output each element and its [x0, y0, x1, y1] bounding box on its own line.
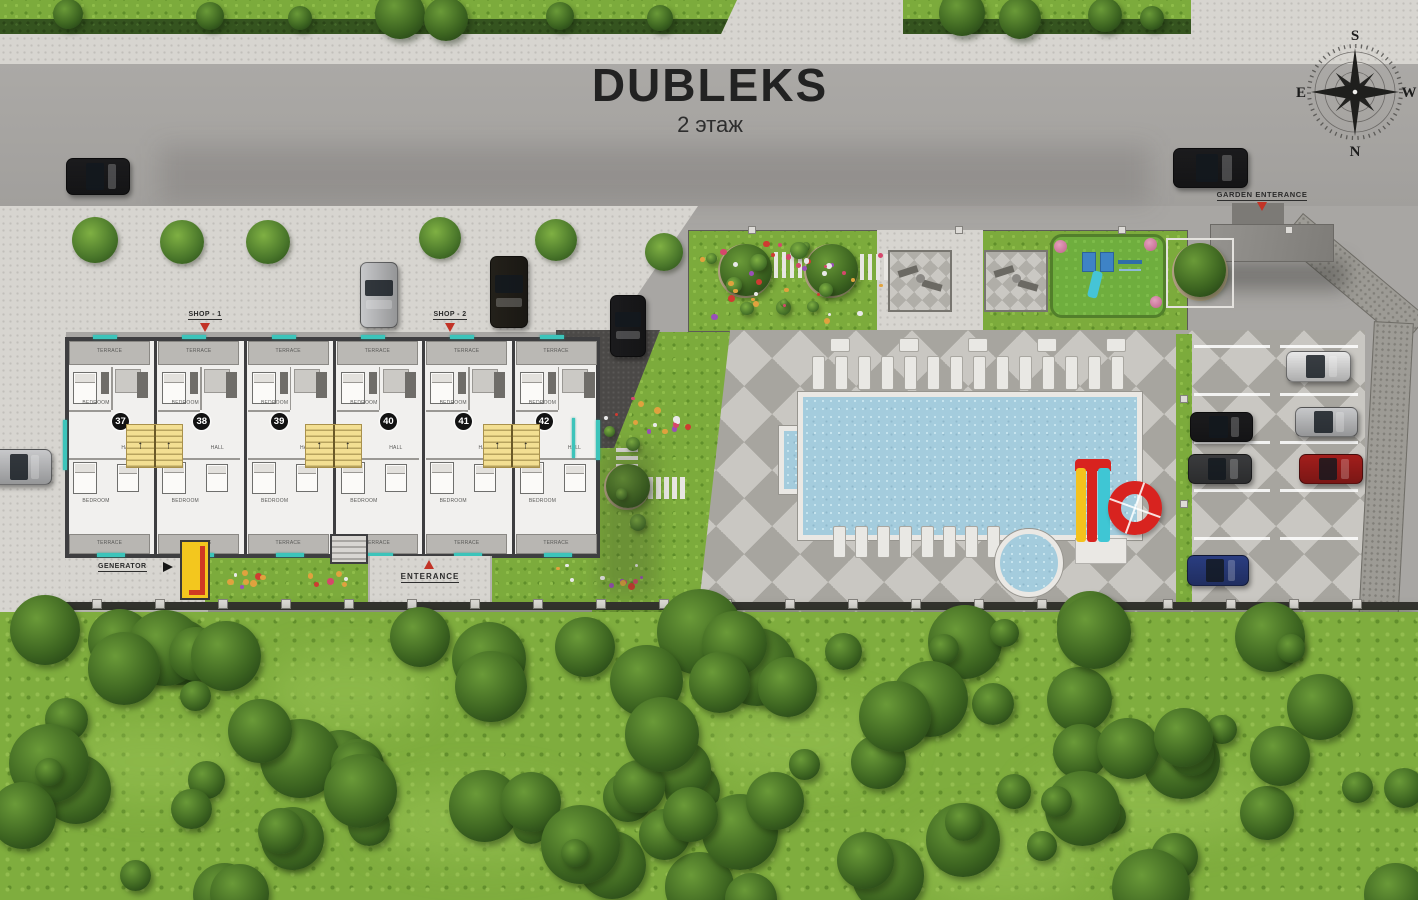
- wall-post: [848, 599, 858, 609]
- corner-planter-tree: [1174, 243, 1226, 297]
- stepping-stone: [860, 254, 864, 280]
- garden-bush: [790, 242, 807, 259]
- parking-line: [1194, 393, 1270, 396]
- bed: [385, 464, 407, 492]
- generator-unit-base: [189, 590, 205, 595]
- stair-flight: ↑: [484, 425, 511, 467]
- terrace-label: TERRACE: [69, 348, 150, 354]
- stepping-stone: [664, 477, 669, 499]
- forest-tree: [1240, 786, 1294, 840]
- forest-tree: [10, 595, 80, 665]
- car-sidewalk-dark: [490, 256, 528, 328]
- forest-tree: [120, 860, 151, 891]
- stepping-stone: [672, 477, 677, 499]
- terrace-label: TERRACE: [426, 540, 507, 546]
- forest-tree: [228, 699, 292, 763]
- terrace-label: TERRACE: [158, 348, 239, 354]
- room-partition: [69, 410, 111, 412]
- street-tree: [424, 0, 468, 41]
- pool-table: [830, 338, 850, 352]
- forest-tree: [789, 749, 819, 779]
- forest-tree: [746, 772, 803, 829]
- bedroom-label: BEDROOM: [426, 498, 480, 504]
- street-tree: [647, 5, 673, 31]
- flower: [796, 263, 801, 268]
- car-roof-highlight: [1228, 560, 1236, 580]
- car-glass: [1206, 559, 1224, 581]
- wall-post: [1226, 599, 1236, 609]
- balcony-accent: [544, 553, 572, 557]
- wall-post: [596, 599, 606, 609]
- sun-lounger: [1065, 356, 1078, 390]
- pool-table: [1037, 338, 1057, 352]
- shop2-label-text: SHOP - 2: [433, 311, 466, 320]
- sun-lounger: [835, 356, 848, 390]
- room-partition: [158, 410, 200, 412]
- garden-bush: [750, 254, 767, 271]
- garden-bush: [807, 301, 818, 312]
- stair-flight: ↑: [127, 425, 154, 467]
- bedroom-label: BEDROOM: [248, 400, 302, 406]
- bed: [73, 462, 97, 494]
- car-glass: [1306, 355, 1325, 377]
- street-tree: [53, 0, 83, 29]
- flower: [234, 573, 237, 576]
- car-parking-black: [1190, 412, 1253, 442]
- forest-tree: [1047, 667, 1112, 732]
- staircase: ↑↑: [305, 424, 362, 468]
- street-tree: [288, 6, 312, 30]
- entrance-arrow: [424, 560, 434, 569]
- wardrobe: [190, 372, 198, 394]
- stair-flight: ↑: [511, 425, 540, 467]
- entrance-label-text: ENTERANCE: [401, 572, 460, 583]
- car-roof-highlight: [1231, 417, 1239, 437]
- car-roof-highlight: [1329, 356, 1337, 376]
- balcony-accent: [361, 335, 385, 339]
- forest-tree: [390, 607, 450, 667]
- terrace-label: TERRACE: [248, 540, 329, 546]
- flower: [804, 258, 809, 263]
- hall-label: HALL: [200, 445, 234, 451]
- sun-lounger: [950, 356, 963, 390]
- car-roof-highlight: [366, 300, 391, 309]
- flower: [733, 289, 737, 293]
- car-road-left: [66, 158, 130, 195]
- balcony-accent: [97, 553, 125, 557]
- bed: [474, 464, 496, 492]
- sun-lounger: [943, 526, 956, 558]
- sun-lounger: [973, 356, 986, 390]
- flower: [662, 429, 668, 435]
- unit-badge: 39: [271, 413, 288, 430]
- forest-tree: [758, 657, 817, 716]
- wall-post: [911, 599, 921, 609]
- stair-flight: ↑: [154, 425, 183, 467]
- bed: [117, 464, 139, 492]
- wardrobe: [316, 372, 327, 398]
- terrace-label: TERRACE: [69, 540, 150, 546]
- flower: [771, 253, 775, 257]
- wardrobe: [280, 372, 288, 394]
- sun-lounger: [1019, 356, 1032, 390]
- wardrobe: [584, 372, 595, 398]
- garden-entrance-label: GARDEN ENTERANCE: [1196, 190, 1328, 199]
- balcony-accent: [596, 420, 600, 460]
- forest-tree: [1384, 768, 1418, 808]
- flower: [822, 271, 827, 276]
- sun-lounger: [833, 526, 846, 558]
- forest-tree: [1250, 726, 1310, 786]
- balcony-accent: [63, 420, 67, 470]
- balcony-accent: [272, 335, 296, 339]
- sidewalk-bush: [160, 220, 204, 264]
- street-tree: [939, 0, 985, 36]
- flower: [565, 564, 568, 567]
- generator-label-text: GENERATOR: [98, 563, 147, 572]
- generator-label: GENERATOR: [98, 563, 147, 570]
- flower: [633, 420, 638, 425]
- shop1-label: SHOP - 1: [170, 311, 240, 318]
- garden-bush: [604, 426, 615, 437]
- balcony-accent: [93, 335, 117, 339]
- shop2-label: SHOP - 2: [415, 311, 485, 318]
- street-tree: [546, 2, 574, 30]
- garden-entrance-arrow: [1257, 202, 1267, 211]
- forest-tree: [1364, 863, 1418, 900]
- forest-tree: [837, 832, 894, 889]
- bedroom-label: BEDROOM: [248, 498, 302, 504]
- forest-tree: [945, 803, 982, 840]
- car-sidewalk-silver: [360, 262, 398, 328]
- room-partition: [337, 410, 379, 412]
- parking-line: [1280, 441, 1358, 444]
- forest-tree: [1154, 708, 1213, 767]
- room-partition: [426, 410, 468, 412]
- shop1-label-text: SHOP - 1: [188, 311, 221, 320]
- wardrobe: [226, 372, 237, 398]
- plan-title: DUBLEKS: [510, 62, 910, 108]
- garden-post: [1118, 226, 1126, 234]
- pool-table: [899, 338, 919, 352]
- wall-post: [155, 599, 165, 609]
- sidewalk-bush: [535, 219, 577, 261]
- stepping-stone: [656, 477, 661, 499]
- car-glass: [1196, 154, 1218, 183]
- car-roof-highlight: [1336, 412, 1344, 432]
- compass-s: S: [1351, 28, 1359, 44]
- terrace-label: TERRACE: [426, 348, 507, 354]
- flower: [784, 288, 788, 292]
- terrace-label: TERRACE: [516, 348, 597, 354]
- forest-tree: [625, 697, 700, 772]
- sidewalk-bush: [419, 217, 461, 259]
- sun-lounger: [996, 356, 1009, 390]
- parking-line: [1194, 537, 1270, 540]
- terrace-label: TERRACE: [516, 540, 597, 546]
- flower-tree: [1150, 296, 1162, 308]
- sun-lounger: [858, 356, 871, 390]
- flower: [327, 578, 334, 585]
- staircase: ↑↑: [126, 424, 183, 468]
- car-roof-highlight: [108, 164, 116, 189]
- plan-title-block: DUBLEKS 2 этаж: [510, 62, 910, 138]
- compass-w: W: [1402, 85, 1417, 101]
- garden-post: [955, 226, 963, 234]
- wardrobe: [458, 372, 466, 394]
- bedroom-label: BEDROOM: [337, 400, 391, 406]
- flower-tree: [1054, 240, 1067, 253]
- sun-lounger: [881, 356, 894, 390]
- bed: [564, 464, 586, 492]
- sun-lounger: [1042, 356, 1055, 390]
- parking-line: [1280, 489, 1358, 492]
- waterslide-lane-yellow: [1076, 468, 1086, 542]
- jacuzzi: [995, 529, 1063, 597]
- wall-post: [344, 599, 354, 609]
- car-parking-gray: [1188, 454, 1252, 484]
- flower: [604, 416, 608, 420]
- flower-tree: [1144, 238, 1157, 251]
- bed: [252, 462, 276, 494]
- balcony-accent: [540, 335, 564, 339]
- unit-divider-wall: [244, 341, 247, 554]
- flower: [763, 241, 769, 247]
- room-partition: [248, 410, 290, 412]
- parking-line: [1280, 345, 1358, 348]
- wall-post: [785, 599, 795, 609]
- sun-lounger: [1088, 356, 1101, 390]
- car-parking-blue: [1187, 555, 1249, 586]
- forest-tree: [825, 633, 862, 670]
- street-tree: [1140, 6, 1164, 30]
- wall-post: [1352, 599, 1362, 609]
- forest-tree: [1277, 634, 1305, 662]
- parking-line: [1280, 393, 1358, 396]
- generator-arrow: [163, 562, 173, 572]
- car-parking-red: [1299, 454, 1363, 484]
- forest-tree: [997, 774, 1031, 808]
- car-roof-highlight: [1341, 459, 1349, 479]
- unit-divider-wall: [422, 341, 425, 554]
- street-tree: [999, 0, 1041, 39]
- forest-tree: [191, 621, 261, 691]
- sun-lounger: [812, 356, 825, 390]
- car-parking-white: [1286, 351, 1351, 382]
- forest: [0, 612, 1418, 900]
- sun-lounger: [921, 526, 934, 558]
- wall-post: [1163, 599, 1173, 609]
- wall-post: [218, 599, 228, 609]
- balcony-accent: [572, 418, 575, 458]
- forest-tree: [455, 651, 526, 722]
- bedroom-label: BEDROOM: [516, 498, 570, 504]
- stair-flight: ↑: [306, 425, 333, 467]
- car-glass: [365, 280, 392, 297]
- wardrobe: [548, 372, 556, 394]
- bed: [206, 464, 228, 492]
- playground-tower-2: [1100, 252, 1114, 272]
- compass-e: E: [1296, 85, 1306, 101]
- forest-tree: [663, 787, 718, 842]
- bedroom-label: BEDROOM: [69, 400, 123, 406]
- forest-tree: [1342, 772, 1373, 803]
- car-left-edge-silver: [0, 449, 52, 485]
- flower: [336, 571, 342, 577]
- street-tree: [196, 2, 224, 30]
- generator-room: [180, 540, 210, 600]
- flower: [733, 262, 738, 267]
- entrance-label: ENTERANCE: [368, 572, 492, 581]
- car-glass: [1314, 411, 1332, 432]
- pergola-table: [916, 274, 925, 283]
- flower: [753, 301, 759, 307]
- pool-table: [1106, 338, 1126, 352]
- room-partition: [516, 410, 558, 412]
- staircase: ↑↑: [483, 424, 540, 468]
- car-glass: [10, 454, 27, 480]
- sidewalk-bush: [246, 220, 290, 264]
- wall-post: [533, 599, 543, 609]
- wardrobe: [405, 372, 416, 398]
- wall-post: [1289, 599, 1299, 609]
- bedroom-label: BEDROOM: [158, 498, 212, 504]
- wall-post: [470, 599, 480, 609]
- flower: [842, 271, 846, 275]
- garden-bush: [740, 302, 754, 316]
- garden-post: [1285, 226, 1293, 234]
- garden-entrance-shadow: [1218, 260, 1346, 290]
- garden-entrance-label-text: GARDEN ENTERANCE: [1217, 190, 1308, 201]
- car-glass: [615, 312, 641, 328]
- forest-tree: [180, 681, 211, 712]
- sun-lounger: [965, 526, 978, 558]
- car-corner-black: [610, 295, 646, 357]
- waterslide-lane-red: [1087, 468, 1097, 542]
- boundary-wall: [62, 602, 1418, 610]
- car-glass: [1208, 458, 1227, 479]
- stepping-stone: [680, 477, 685, 499]
- bedroom-label: BEDROOM: [426, 400, 480, 406]
- flower: [824, 318, 830, 324]
- flower: [857, 311, 863, 317]
- pergola-table: [1012, 274, 1021, 283]
- stone-wall-right: [1358, 321, 1414, 625]
- stepping-stone: [868, 254, 872, 280]
- flower: [700, 257, 704, 261]
- bed: [296, 464, 318, 492]
- hall-label: HALL: [379, 445, 413, 451]
- forest-tree: [689, 652, 750, 713]
- car-parking-silver: [1295, 407, 1358, 437]
- flower: [227, 579, 234, 586]
- compass-n: N: [1350, 144, 1361, 160]
- wall-post: [281, 599, 291, 609]
- forest-tree: [972, 683, 1014, 725]
- wardrobe: [137, 372, 148, 398]
- flower: [653, 423, 657, 427]
- balcony-accent: [276, 553, 304, 557]
- flower: [879, 284, 882, 287]
- site-plan: TERRACEBEDROOMHALLBEDROOMTERRACE37TERRAC…: [0, 0, 1418, 900]
- flower: [676, 419, 681, 424]
- stair-annex: [330, 534, 368, 564]
- flower: [654, 407, 661, 414]
- sun-lounger: [855, 526, 868, 558]
- sun-lounger: [927, 356, 940, 390]
- sun-lounger: [904, 356, 917, 390]
- forest-tree: [859, 681, 931, 753]
- generator-unit: [200, 546, 205, 594]
- flower: [802, 266, 807, 271]
- forest-tree: [88, 632, 160, 704]
- garden-post: [748, 226, 756, 234]
- sidewalk-bush: [72, 217, 118, 263]
- terrace-label: TERRACE: [248, 348, 329, 354]
- shop1-arrow: [200, 323, 210, 332]
- street-tree: [375, 0, 425, 39]
- car-glass: [1209, 416, 1227, 437]
- wardrobe: [494, 372, 505, 398]
- sun-lounger: [1111, 356, 1124, 390]
- garden-bush: [819, 283, 833, 297]
- car-roof-highlight: [31, 455, 39, 479]
- wardrobe: [101, 372, 109, 394]
- balcony-accent: [182, 335, 206, 339]
- flower: [250, 580, 257, 587]
- car-roof-highlight: [1222, 155, 1231, 182]
- car-roof-highlight: [1230, 459, 1238, 479]
- building-shadow-east: [600, 446, 656, 596]
- flower: [243, 579, 249, 585]
- compass-rose: S E W N: [1292, 22, 1418, 162]
- pool-table: [968, 338, 988, 352]
- stair-flight: ↑: [333, 425, 362, 467]
- playground-swing: [1118, 260, 1142, 264]
- forest-tree: [1057, 595, 1132, 670]
- car-road-right: [1173, 148, 1248, 188]
- sun-lounger: [877, 526, 890, 558]
- forest-tree: [555, 617, 615, 677]
- car-glass: [495, 275, 522, 293]
- parking-line: [1194, 345, 1270, 348]
- playground-tower-1: [1082, 252, 1096, 272]
- flower: [786, 254, 791, 259]
- hedge-post: [1180, 395, 1188, 403]
- balcony-accent: [450, 335, 474, 339]
- forest-tree: [1287, 674, 1353, 740]
- car-roof-highlight: [496, 298, 521, 308]
- forest-tree: [1097, 718, 1158, 779]
- sun-lounger: [899, 526, 912, 558]
- street-tree: [1088, 0, 1122, 32]
- bed: [430, 462, 454, 494]
- forest-tree: [0, 782, 56, 848]
- bedroom-label: BEDROOM: [69, 498, 123, 504]
- forest-tree: [1027, 831, 1057, 861]
- car-roof-highlight: [616, 331, 640, 339]
- wall-post: [92, 599, 102, 609]
- forest-tree: [258, 808, 304, 854]
- bedroom-label: BEDROOM: [516, 400, 570, 406]
- parking-line: [1194, 489, 1270, 492]
- flower: [851, 278, 855, 282]
- bedroom-label: BEDROOM: [337, 498, 391, 504]
- wardrobe: [369, 372, 377, 394]
- wall-post: [1037, 599, 1047, 609]
- parking-line: [1280, 537, 1358, 540]
- hedge-post: [1180, 500, 1188, 508]
